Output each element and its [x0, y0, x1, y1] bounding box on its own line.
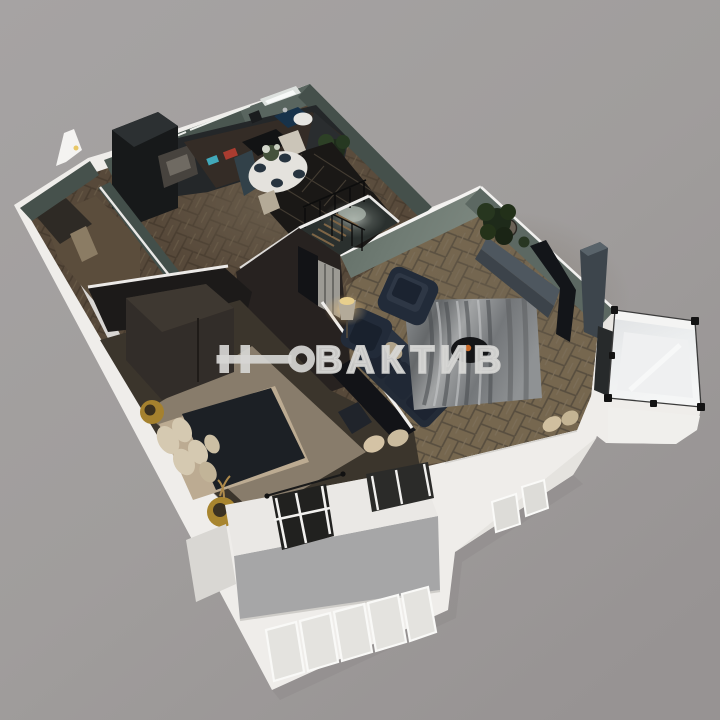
svg-text:ВАКТИВ: ВАКТИВ: [315, 340, 507, 382]
